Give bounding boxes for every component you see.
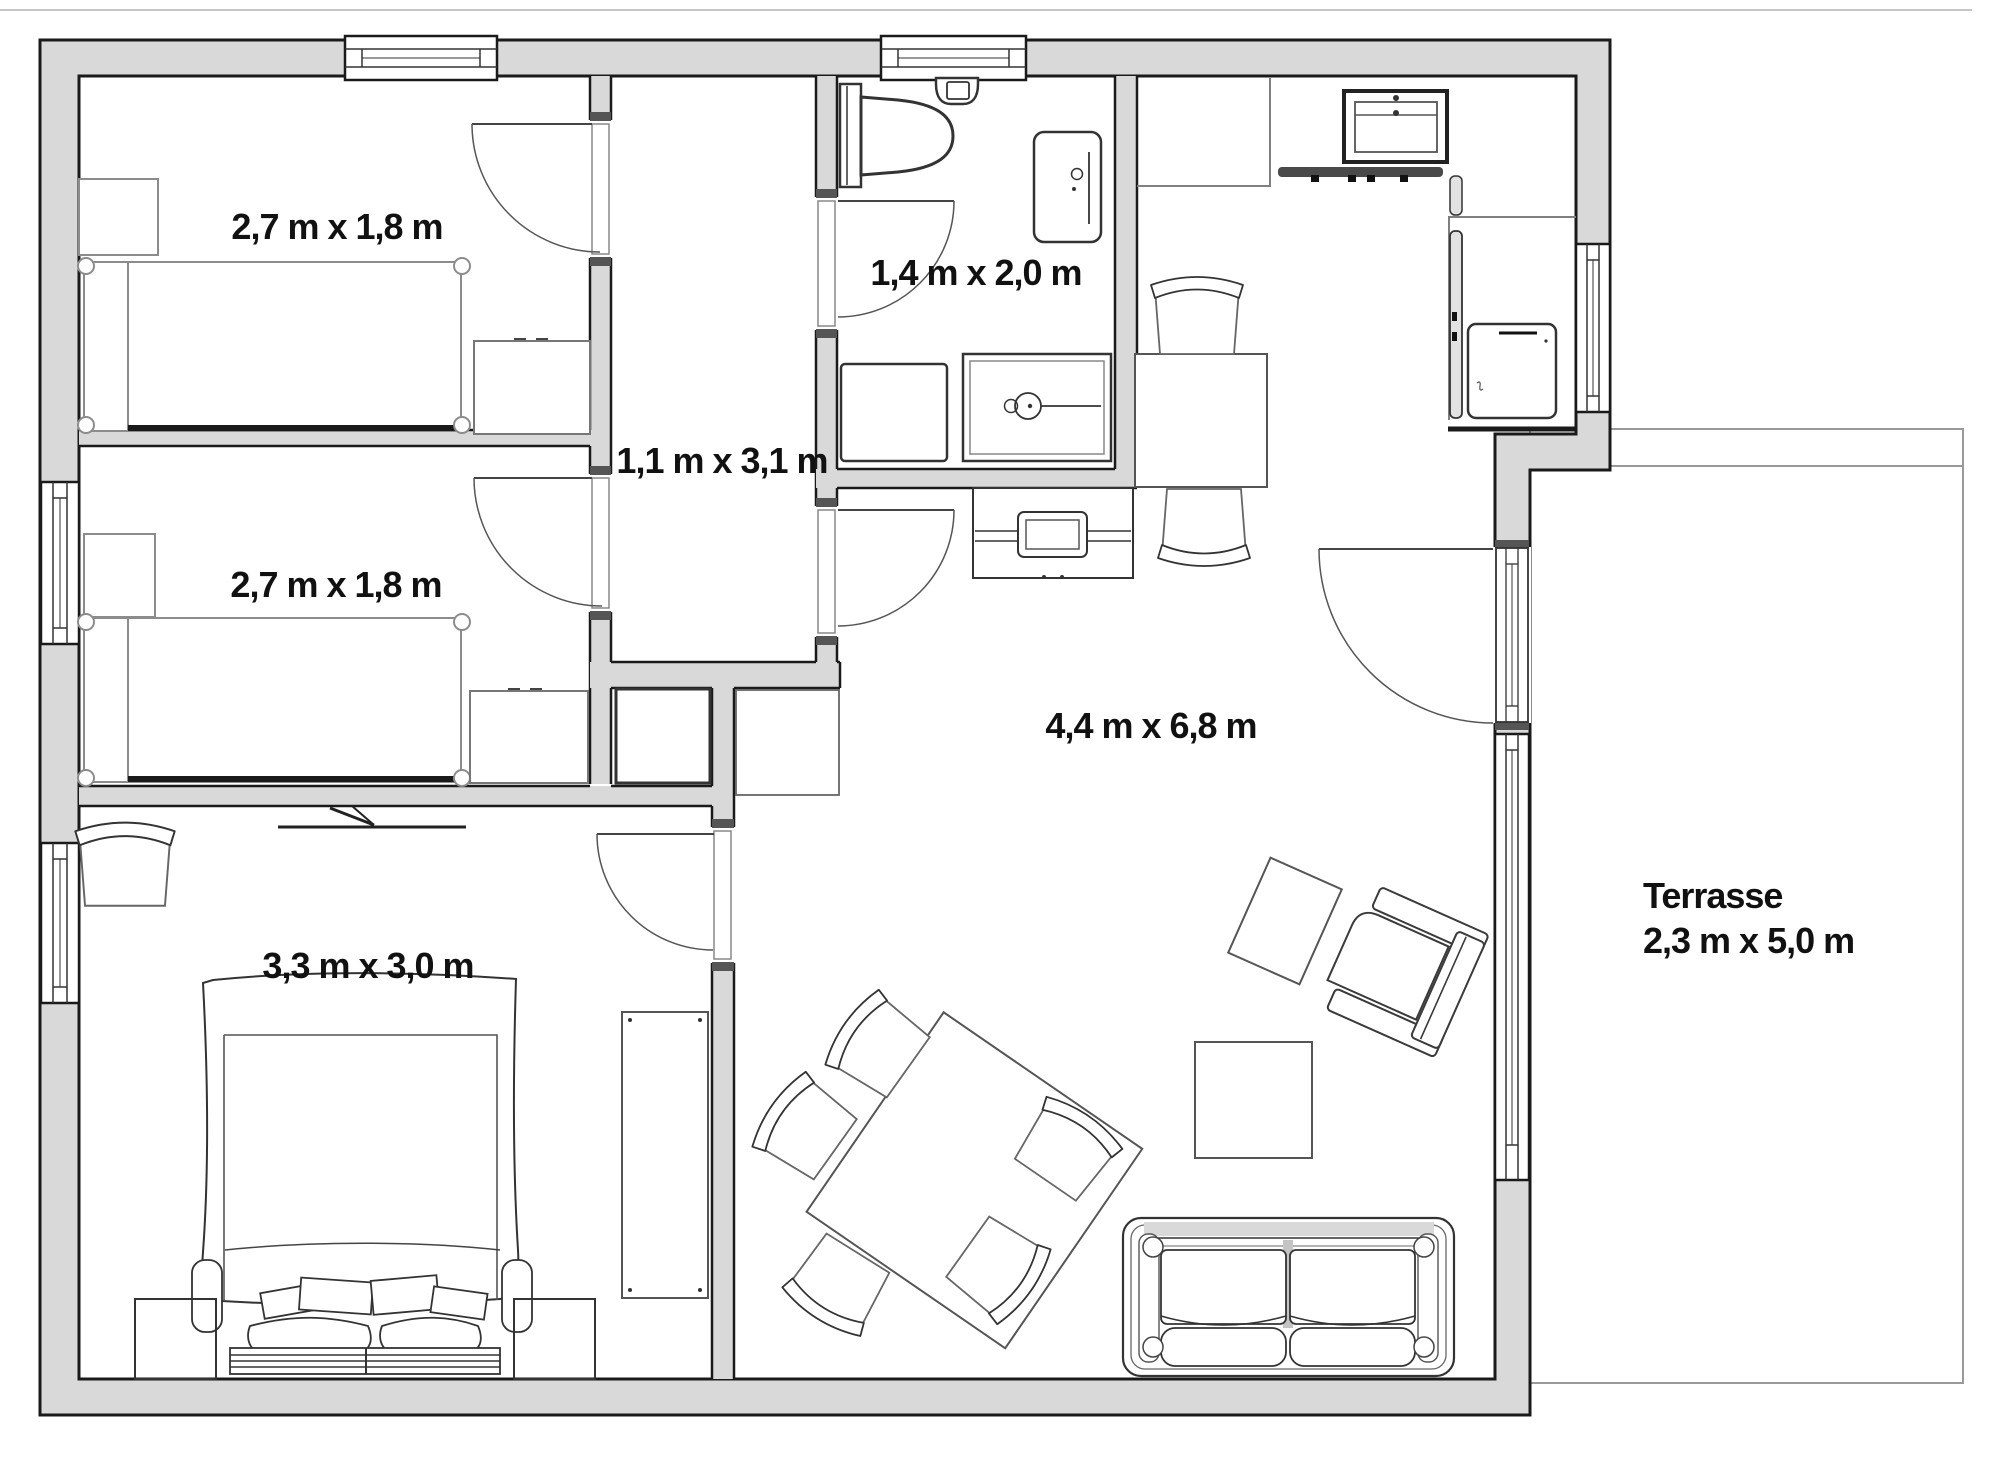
svg-text:2,7 m x 1,8 m: 2,7 m x 1,8 m (230, 564, 441, 605)
svg-text:1,1 m x 3,1 m: 1,1 m x 3,1 m (616, 440, 827, 481)
svg-text:2,7 m x 1,8 m: 2,7 m x 1,8 m (231, 206, 442, 247)
svg-text:2,3 m x 5,0 m: 2,3 m x 5,0 m (1643, 920, 1854, 961)
svg-text:1,4 m x 2,0 m: 1,4 m x 2,0 m (870, 252, 1081, 293)
svg-text:Terrasse: Terrasse (1643, 875, 1782, 916)
svg-text:4,4 m x 6,8 m: 4,4 m x 6,8 m (1045, 705, 1256, 746)
svg-text:3,3 m x 3,0 m: 3,3 m x 3,0 m (262, 945, 473, 986)
